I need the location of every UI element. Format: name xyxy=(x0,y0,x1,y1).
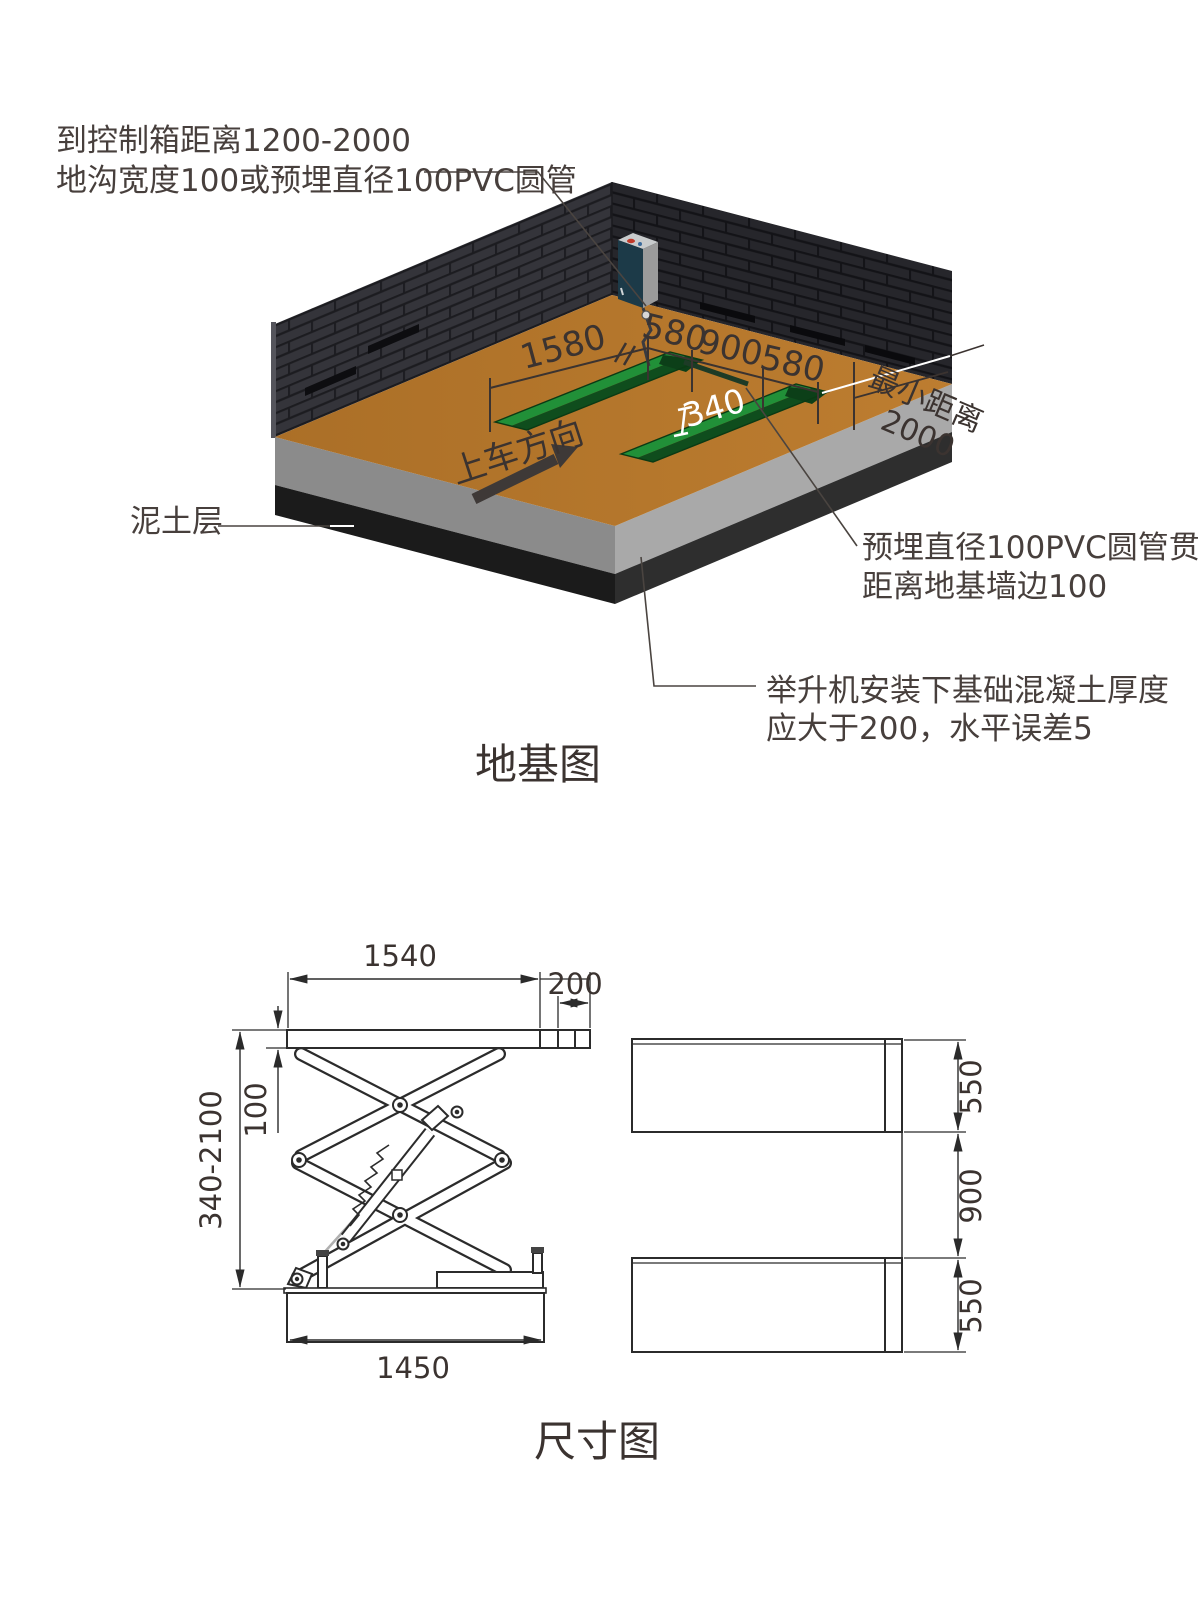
platform-bottom-outline xyxy=(632,1258,902,1352)
control-box-side xyxy=(643,242,658,308)
foundation-title: 地基图 xyxy=(475,740,601,789)
dim-550-top: 550 xyxy=(954,1059,988,1114)
side-view: 1540 200 100 340-2100 1450 xyxy=(194,939,603,1385)
dim-550-bottom: 550 xyxy=(954,1278,988,1333)
control-box-blue-button xyxy=(638,242,642,246)
base-frame xyxy=(284,1247,546,1342)
annotation-concrete-line2: 应大于200，水平误差5 xyxy=(766,711,1093,747)
installation-diagram: 1580 580 900 580 340 上车方向 最小距离 2000 xyxy=(0,0,1200,1610)
annotation-pvc-line1: 预埋直径100PVC圆管贯通 xyxy=(862,530,1200,566)
dim-100: 100 xyxy=(239,1082,273,1137)
dimension-title: 尺寸图 xyxy=(534,1417,660,1466)
limit-post-cap xyxy=(316,1250,329,1256)
wall-edge-cap xyxy=(271,322,276,438)
annotation-control-box-line1: 到控制箱距离1200-2000 xyxy=(56,123,411,159)
dim-1450: 1450 xyxy=(376,1351,450,1385)
foundation-3d-view: 1580 580 900 580 340 上车方向 最小距离 2000 xyxy=(56,123,1200,789)
annotation-concrete-line1: 举升机安装下基础混凝土厚度 xyxy=(766,673,1169,709)
dim-900: 900 xyxy=(954,1168,988,1223)
dim-1540: 1540 xyxy=(363,939,437,973)
platform-top-outline xyxy=(632,1039,902,1132)
top-view: 550 900 550 xyxy=(632,1039,988,1352)
annotation-control-box-line2: 地沟宽度100或预埋直径100PVC圆管 xyxy=(56,163,577,199)
annotation-soil-layer: 泥土层 xyxy=(130,504,223,540)
dim-340-2100: 340-2100 xyxy=(194,1090,228,1230)
limit-post-cap xyxy=(531,1247,544,1253)
annotation-pvc-line2: 距离地基墙边100 xyxy=(862,569,1107,605)
top-view-dimensions: 550 900 550 xyxy=(904,1040,988,1352)
installation-diagram-page: 1580 580 900 580 340 上车方向 最小距离 2000 xyxy=(0,0,1200,1610)
limit-post xyxy=(318,1256,327,1288)
foundation-pit-outline xyxy=(287,1293,544,1342)
scissor-mechanism xyxy=(292,1054,509,1277)
dim-200: 200 xyxy=(547,967,602,1001)
platform-outline xyxy=(287,1030,590,1048)
control-box-red-button xyxy=(627,239,635,243)
limit-post xyxy=(533,1253,542,1273)
